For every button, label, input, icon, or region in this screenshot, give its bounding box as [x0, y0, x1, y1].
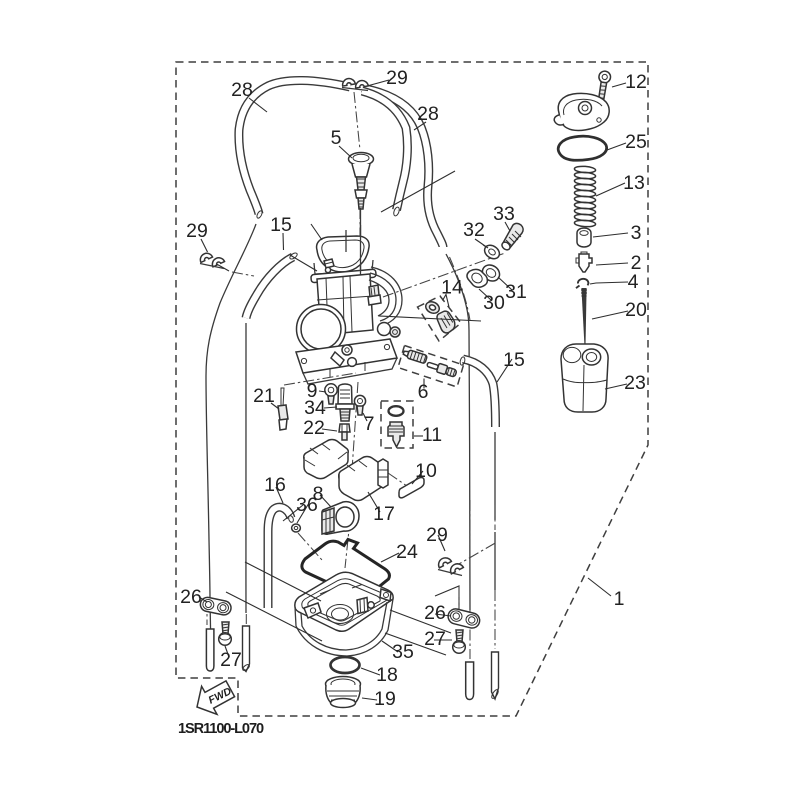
svg-text:17: 17: [373, 503, 395, 525]
svg-text:7: 7: [364, 413, 375, 435]
svg-text:1: 1: [614, 588, 625, 610]
svg-text:13: 13: [623, 172, 645, 194]
svg-text:25: 25: [625, 131, 647, 153]
svg-text:34: 34: [304, 397, 326, 419]
svg-text:14: 14: [441, 277, 463, 299]
svg-text:15: 15: [270, 214, 292, 236]
svg-text:22: 22: [303, 417, 325, 439]
svg-text:28: 28: [417, 103, 439, 125]
svg-text:11: 11: [422, 424, 442, 446]
svg-text:4: 4: [628, 271, 639, 293]
svg-text:3: 3: [631, 222, 642, 244]
svg-text:23: 23: [624, 372, 646, 394]
svg-text:12: 12: [625, 71, 647, 93]
svg-text:16: 16: [264, 474, 286, 496]
svg-text:36: 36: [296, 494, 318, 516]
svg-text:26: 26: [424, 602, 446, 624]
svg-text:15: 15: [503, 349, 525, 371]
svg-text:29: 29: [386, 67, 408, 89]
svg-text:24: 24: [396, 541, 418, 563]
svg-text:20: 20: [625, 299, 647, 321]
svg-text:10: 10: [415, 460, 437, 482]
svg-text:31: 31: [505, 281, 527, 303]
svg-text:29: 29: [426, 524, 448, 546]
svg-text:32: 32: [463, 219, 485, 241]
svg-text:18: 18: [376, 664, 398, 686]
svg-text:27: 27: [424, 628, 446, 650]
svg-text:6: 6: [418, 381, 429, 403]
svg-text:26: 26: [180, 586, 202, 608]
svg-text:29: 29: [186, 220, 208, 242]
svg-text:28: 28: [231, 79, 253, 101]
svg-text:35: 35: [392, 641, 414, 663]
svg-text:5: 5: [331, 127, 342, 149]
svg-text:30: 30: [483, 292, 505, 314]
svg-text:33: 33: [493, 203, 515, 225]
svg-text:19: 19: [374, 688, 396, 710]
svg-text:27: 27: [220, 649, 242, 671]
svg-text:21: 21: [253, 385, 275, 407]
svg-text:1SR1100-L070: 1SR1100-L070: [178, 721, 264, 737]
